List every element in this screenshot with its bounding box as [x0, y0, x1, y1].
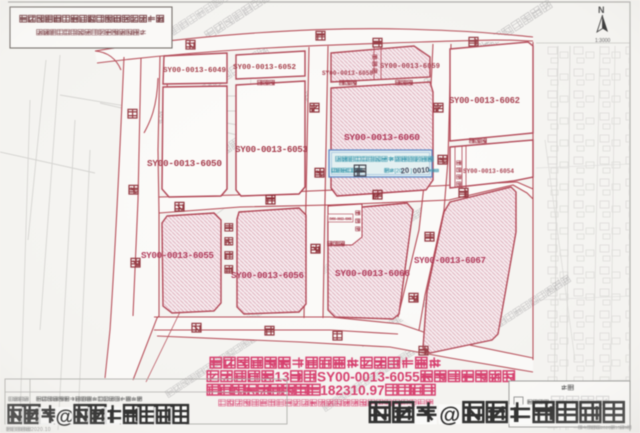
svg-text:SY00-0013-6050: SY00-0013-6050 — [147, 158, 222, 169]
svg-text:SY00-0013-6054: SY00-0013-6054 — [463, 168, 514, 175]
svg-text:SY00-0013-6058: SY00-0013-6058 — [322, 70, 373, 77]
svg-text:SY00-0013-6059: SY00-0013-6059 — [380, 63, 440, 71]
svg-text:SY00-0013-6056: SY00-0013-6056 — [231, 270, 304, 281]
svg-text:SY00-0013-6065: SY00-0013-6065 — [329, 218, 353, 222]
svg-text:182310.97: 182310.97 — [320, 383, 384, 398]
svg-text:SY00-0013-6060: SY00-0013-6060 — [344, 132, 420, 143]
svg-text:2020.10: 2020.10 — [31, 427, 51, 433]
svg-text:@: @ — [439, 403, 460, 427]
svg-text:20: 20 — [400, 166, 409, 176]
svg-text:13: 13 — [275, 370, 291, 385]
svg-text:SY00-0013-6066: SY00-0013-6066 — [335, 268, 410, 279]
svg-text:SY00-0013-6053: SY00-0013-6053 — [235, 144, 308, 155]
svg-text:N: N — [598, 5, 605, 15]
svg-text:2020: 2020 — [601, 425, 611, 430]
svg-text:SY00-0013-6062: SY00-0013-6062 — [449, 96, 520, 106]
svg-text:SY00-0013-6052: SY00-0013-6052 — [233, 64, 296, 72]
svg-text:SY00-0013-6049: SY00-0013-6049 — [163, 67, 226, 75]
svg-text:0010: 0010 — [412, 165, 429, 175]
svg-text:10: 10 — [615, 425, 620, 430]
svg-text:1:3000: 1:3000 — [595, 38, 611, 44]
svg-text:SY00-0013-6055: SY00-0013-6055 — [141, 250, 214, 261]
svg-text:SY00-0013-6067: SY00-0013-6067 — [414, 255, 486, 266]
